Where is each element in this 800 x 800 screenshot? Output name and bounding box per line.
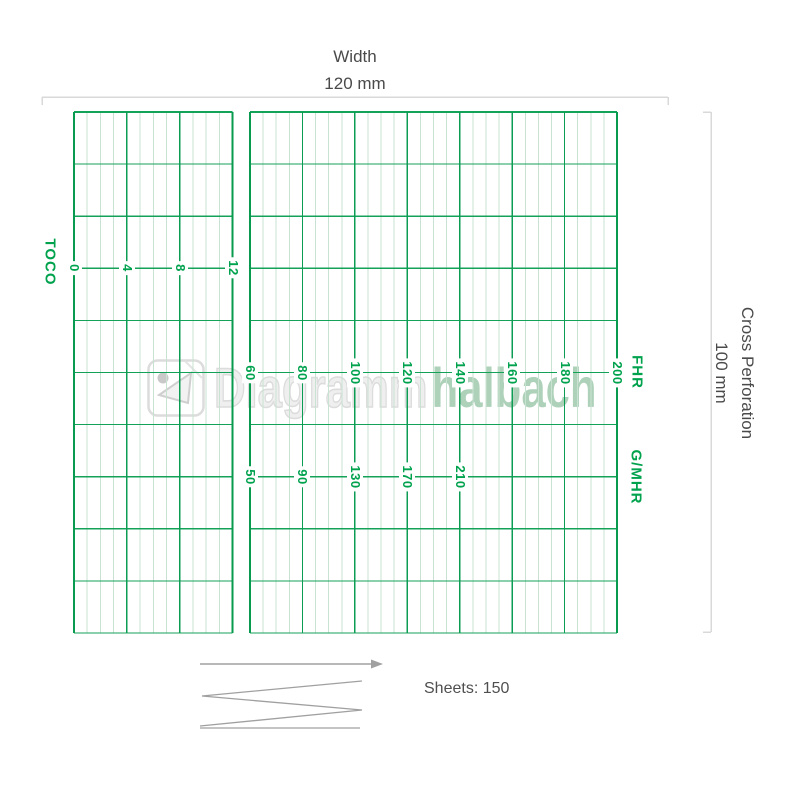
gmhr-tick-130: 130: [347, 462, 363, 491]
fhr-tick-200: 200: [609, 358, 625, 387]
fhr-tick-80: 80: [294, 362, 310, 383]
width-dimension-value: 120 mm: [42, 70, 668, 97]
fhr-tick-160: 160: [504, 358, 520, 387]
grid-lines: [0, 0, 800, 800]
fhr-tick-140: 140: [452, 358, 468, 387]
fhr-tick-120: 120: [399, 358, 415, 387]
gmhr-tick-170: 170: [399, 462, 415, 491]
cross-perforation-dimension: Cross Perforation 100 mm: [708, 307, 760, 439]
gmhr-tick-90: 90: [294, 466, 310, 487]
toco-tick-8: 8: [172, 261, 188, 275]
fhr-tick-100: 100: [347, 358, 363, 387]
toco-tick-12: 12: [225, 258, 241, 279]
axis-title-gmhr: G/MHR: [628, 450, 645, 505]
cross-perforation-label: Cross Perforation: [734, 307, 760, 439]
width-dimension-label: Width: [42, 43, 668, 70]
gmhr-tick-210: 210: [452, 462, 468, 491]
fhr-tick-60: 60: [242, 362, 258, 383]
axis-title-toco: TOCO: [42, 238, 59, 285]
width-dimension: Width 120 mm: [42, 43, 668, 97]
sheets-count: Sheets: 150: [424, 680, 509, 698]
toco-tick-0: 0: [66, 261, 82, 275]
ctg-paper-diagram: Diagramm halbach 04812608010012014016018…: [0, 0, 800, 800]
fhr-tick-180: 180: [557, 358, 573, 387]
axis-title-fhr: FHR: [629, 355, 646, 389]
gmhr-tick-50: 50: [242, 466, 258, 487]
toco-tick-4: 4: [119, 261, 135, 275]
cross-perforation-value: 100 mm: [708, 307, 734, 439]
